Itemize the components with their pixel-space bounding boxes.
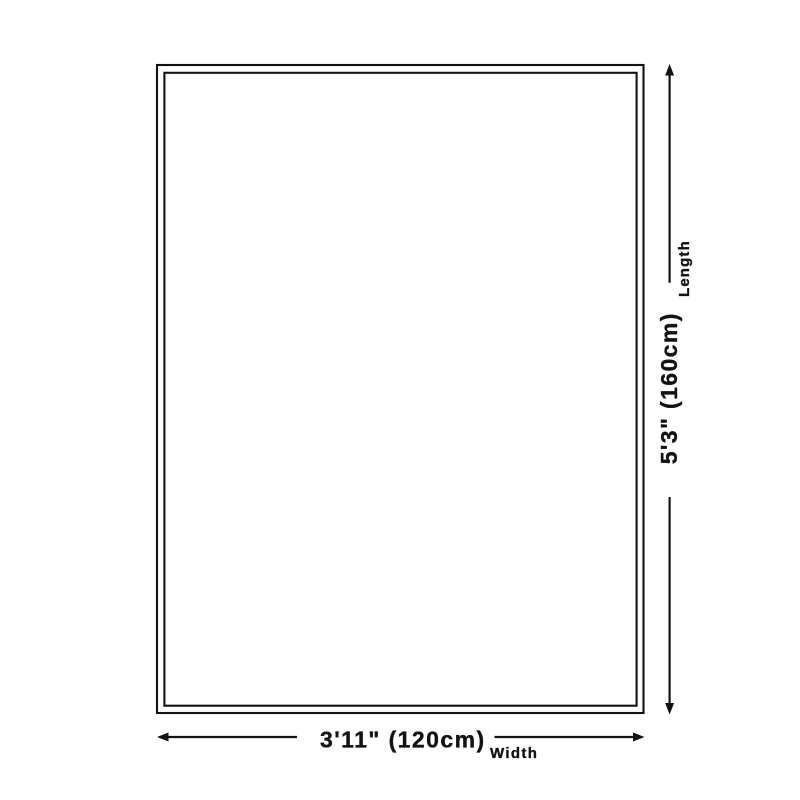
svg-text:5'3" (160cm): 5'3" (160cm)	[656, 312, 682, 464]
svg-text:Width: Width	[490, 745, 538, 762]
svg-text:3'11" (120cm): 3'11" (120cm)	[320, 727, 486, 753]
svg-text:Length: Length	[676, 240, 693, 297]
